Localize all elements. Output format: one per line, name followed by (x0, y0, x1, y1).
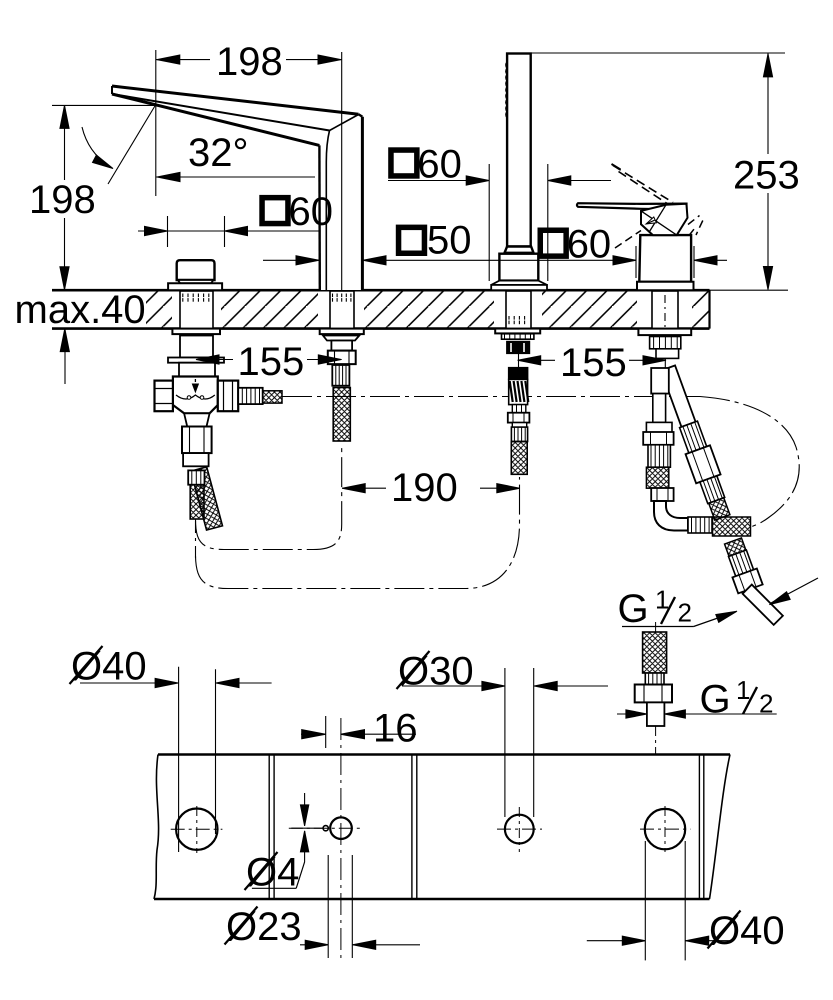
svg-text:198: 198 (216, 40, 283, 84)
svg-text:max.40: max.40 (15, 288, 146, 332)
svg-text:253: 253 (733, 154, 800, 198)
svg-text:Ø40: Ø40 (709, 909, 785, 953)
svg-text:60: 60 (417, 142, 462, 186)
svg-text:Ø30: Ø30 (398, 650, 474, 694)
svg-text:2: 2 (678, 598, 692, 628)
svg-text:G: G (618, 587, 649, 631)
svg-text:198: 198 (29, 178, 96, 222)
svg-text:60: 60 (289, 190, 334, 234)
svg-text:50: 50 (427, 219, 472, 263)
svg-text:190: 190 (391, 466, 458, 510)
svg-text:Ø40: Ø40 (71, 645, 147, 689)
svg-text:32°: 32° (188, 131, 249, 175)
svg-text:155: 155 (560, 341, 627, 385)
svg-text:16: 16 (373, 707, 418, 751)
svg-text:155: 155 (238, 340, 305, 384)
svg-text:Ø23: Ø23 (226, 905, 302, 949)
svg-text:60: 60 (567, 223, 612, 267)
svg-text:G: G (700, 678, 731, 722)
svg-text:1: 1 (736, 675, 750, 705)
